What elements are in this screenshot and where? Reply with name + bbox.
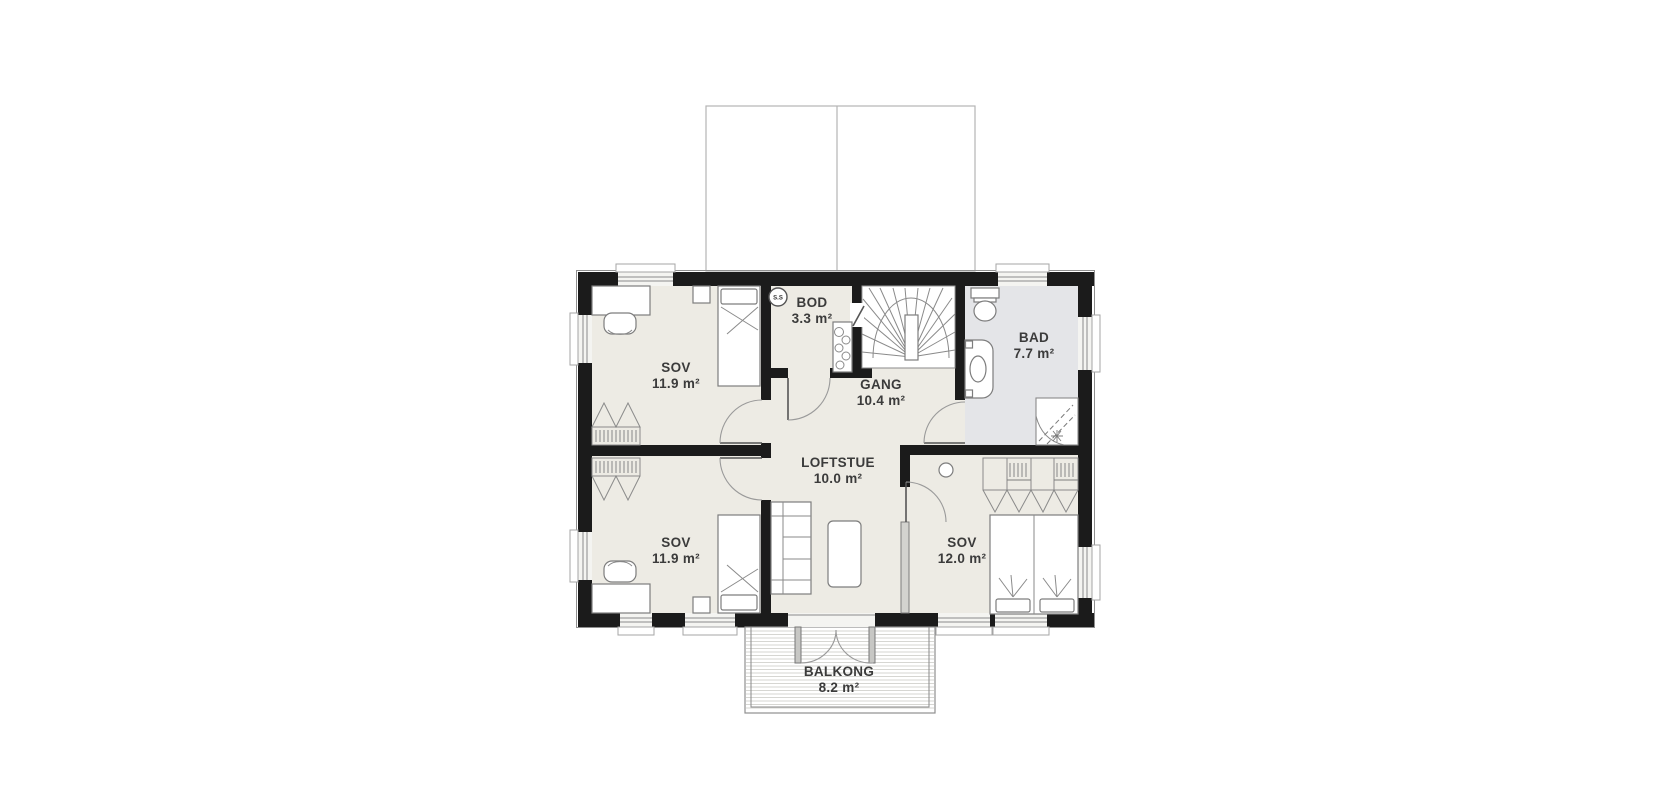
pillow-right (1040, 599, 1074, 612)
coffee-table (828, 521, 861, 587)
room-name-gang: GANG (860, 377, 902, 392)
balcony-door-leaf-right (869, 627, 875, 663)
room-name-sov-upper-left: SOV (661, 360, 690, 375)
room-area-sov-right: 12.0 m² (938, 551, 987, 566)
smoke-detector-symbol: S.S (769, 288, 787, 306)
floorplan-drawing: S.S SOV 11.9 m² BOD 3.3 m² GANG 10.4 m² … (0, 0, 1670, 800)
room-area-bod: 3.3 m² (792, 311, 833, 326)
desk-chair (604, 561, 636, 582)
furniture-bod (833, 322, 852, 372)
glass-partition (901, 522, 909, 613)
room-area-loftstue: 10.0 m² (814, 471, 863, 486)
nightstand (693, 597, 710, 613)
room-area-sov-lower-left: 11.9 m² (652, 551, 700, 566)
floorplan-page: S.S SOV 11.9 m² BOD 3.3 m² GANG 10.4 m² … (0, 0, 1670, 800)
room-area-sov-upper-left: 11.9 m² (652, 376, 700, 391)
room-name-balkong: BALKONG (804, 664, 874, 679)
ceiling-light (939, 463, 953, 477)
room-name-loftstue: LOFTSTUE (801, 455, 875, 470)
room-area-balkong: 8.2 m² (819, 680, 860, 695)
pillow (721, 595, 757, 610)
balcony (745, 613, 935, 713)
roof-outline (706, 106, 975, 271)
room-name-sov-right: SOV (947, 535, 976, 550)
room-name-bad: BAD (1019, 330, 1049, 345)
desk (592, 584, 650, 613)
pillow-left (996, 599, 1030, 612)
balcony-door-leaf-left (795, 627, 801, 663)
room-area-bad: 7.7 m² (1014, 346, 1055, 361)
nightstand (693, 286, 710, 303)
pillow (721, 289, 757, 304)
shower (1036, 398, 1078, 445)
room-name-bod: BOD (797, 295, 828, 310)
room-area-gang: 10.4 m² (857, 393, 906, 408)
room-name-sov-lower-left: SOV (661, 535, 690, 550)
sink-vanity (965, 340, 993, 398)
desk (592, 286, 650, 315)
smoke-detector-label: S.S (773, 296, 783, 302)
stair-newel (905, 315, 918, 360)
